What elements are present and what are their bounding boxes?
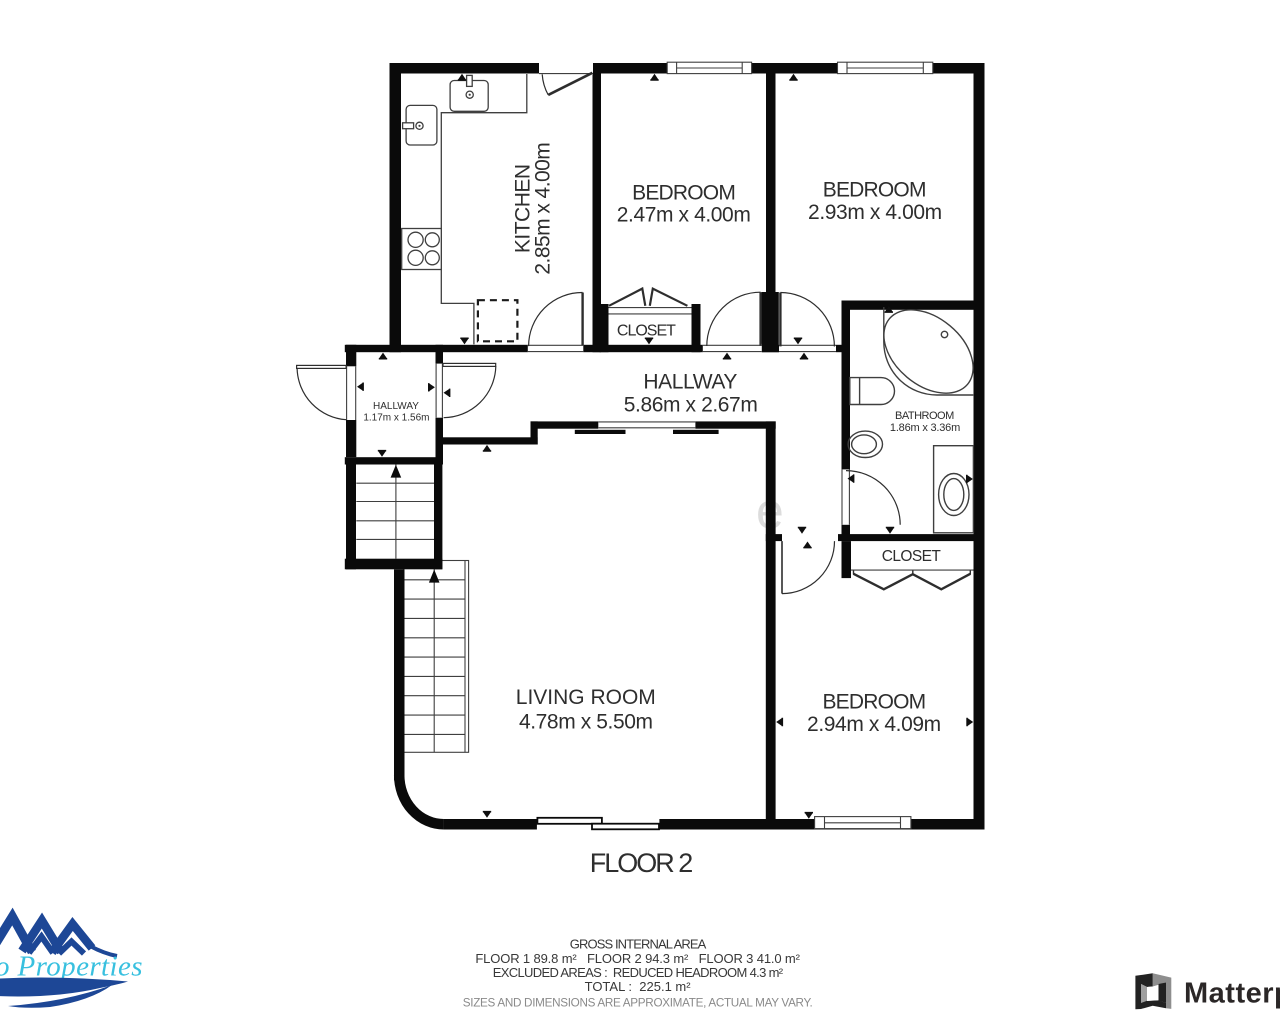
svg-text:2.47m x 4.00m: 2.47m x 4.00m (617, 204, 751, 227)
svg-text:2.94m x 4.09m: 2.94m x 4.09m (807, 713, 941, 736)
svg-text:5.86m x 2.67m: 5.86m x 2.67m (624, 393, 758, 416)
svg-text:HALLWAY: HALLWAY (373, 401, 419, 412)
svg-text:FLOOR 1 89.8 m² FLOOR 2 94.3: FLOOR 1 89.8 m² FLOOR 2 94.3 m² FLOOR 3 … (475, 951, 800, 966)
svg-text:LIVING ROOM: LIVING ROOM (516, 686, 656, 709)
svg-text:HALLWAY: HALLWAY (643, 371, 737, 394)
svg-text:1.86m x 3.36m: 1.86m x 3.36m (890, 422, 960, 434)
svg-text:o Properties: o Properties (0, 951, 143, 983)
svg-text:BEDROOM: BEDROOM (823, 179, 926, 202)
svg-text:4.78m x 5.50m: 4.78m x 5.50m (519, 710, 653, 733)
svg-text:CLOSET: CLOSET (617, 323, 676, 340)
svg-text:GROSS INTERNAL AREA: GROSS INTERNAL AREA (570, 937, 707, 952)
svg-text:CLOSET: CLOSET (882, 548, 942, 565)
svg-text:BEDROOM: BEDROOM (632, 181, 735, 204)
svg-text:EXCLUDED AREAS : REDUCED HEAD: EXCLUDED AREAS : REDUCED HEADROOM 4.3 m² (493, 965, 784, 980)
svg-text:FLOOR 2: FLOOR 2 (590, 848, 693, 878)
svg-text:2.93m x 4.00m: 2.93m x 4.00m (808, 201, 942, 224)
svg-text:Matterport: Matterport (1184, 978, 1280, 1010)
svg-text:2.85m x 4.00m: 2.85m x 4.00m (531, 143, 554, 275)
svg-text:BATHROOM: BATHROOM (895, 410, 954, 422)
svg-text:TOTAL : 225.1 m²: TOTAL : 225.1 m² (585, 979, 692, 994)
svg-text:1.17m x 1.56m: 1.17m x 1.56m (363, 412, 429, 423)
svg-text:BEDROOM: BEDROOM (822, 691, 925, 714)
svg-text:SIZES AND DIMENSIONS ARE APPRO: SIZES AND DIMENSIONS ARE APPROXIMATE, AC… (463, 996, 813, 1009)
